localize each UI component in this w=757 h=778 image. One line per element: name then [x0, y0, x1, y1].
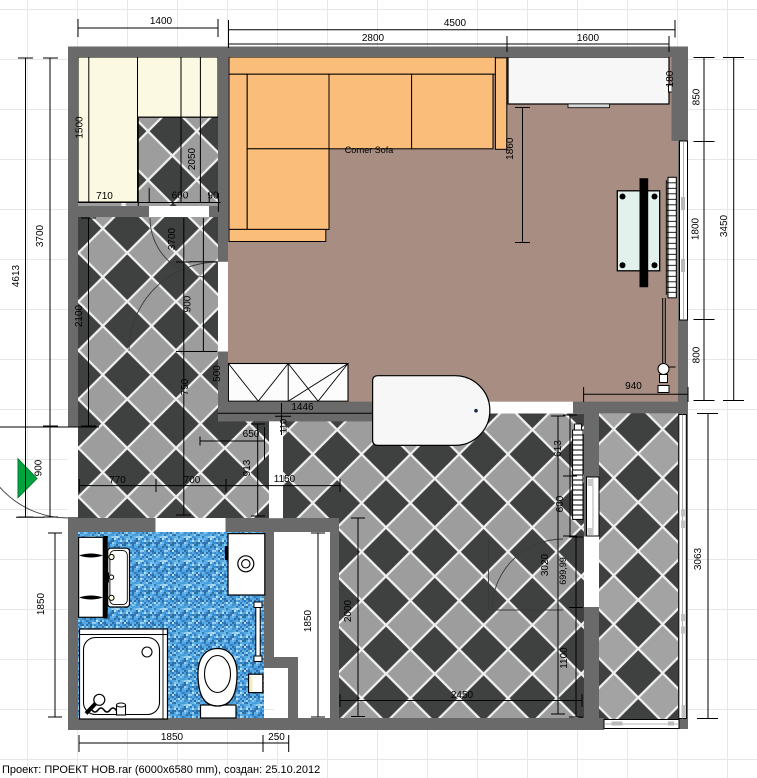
svg-text:2100: 2100	[74, 304, 85, 327]
svg-text:1100: 1100	[559, 647, 570, 669]
svg-text:3450: 3450	[719, 214, 730, 237]
svg-text:Проект: ПРОЕКТ НОВ.rar (6000x6: Проект: ПРОЕКТ НОВ.rar (6000x6580 mm), с…	[2, 764, 320, 776]
svg-text:913: 913	[242, 459, 253, 476]
svg-text:3700: 3700	[35, 224, 46, 247]
svg-text:710: 710	[96, 191, 113, 202]
svg-text:Corner Sofa: Corner Sofa	[345, 145, 394, 155]
svg-text:2000: 2000	[343, 599, 354, 622]
svg-text:500: 500	[212, 365, 223, 382]
svg-text:1850: 1850	[161, 732, 184, 743]
svg-text:90: 90	[207, 191, 219, 202]
svg-text:2800: 2800	[362, 33, 385, 44]
svg-text:613: 613	[553, 440, 564, 457]
svg-text:650: 650	[243, 429, 260, 440]
svg-text:3020: 3020	[540, 553, 551, 576]
svg-text:900: 900	[183, 295, 194, 312]
svg-text:2050: 2050	[187, 147, 198, 170]
svg-text:1400: 1400	[150, 16, 173, 27]
svg-text:700: 700	[184, 475, 201, 486]
svg-text:250: 250	[268, 732, 285, 743]
svg-text:600: 600	[555, 495, 566, 512]
svg-text:750: 750	[180, 378, 191, 395]
svg-text:3700: 3700	[167, 227, 178, 250]
svg-text:4500: 4500	[444, 18, 467, 29]
svg-text:800: 800	[692, 346, 703, 363]
svg-text:1600: 1600	[577, 33, 600, 44]
svg-text:850: 850	[692, 88, 703, 105]
svg-text:4613: 4613	[11, 264, 22, 287]
svg-text:1446: 1446	[291, 402, 314, 413]
svg-text:1800: 1800	[691, 217, 702, 240]
svg-text:1850: 1850	[36, 592, 47, 615]
svg-text:3063: 3063	[693, 547, 704, 570]
svg-text:1850: 1850	[303, 609, 314, 632]
svg-text:2450: 2450	[451, 690, 474, 701]
svg-text:770: 770	[109, 475, 126, 486]
svg-text:900: 900	[34, 459, 45, 476]
svg-text:940: 940	[625, 381, 642, 392]
svg-text:1860: 1860	[505, 137, 516, 160]
svg-text:180: 180	[665, 70, 676, 87]
svg-text:600: 600	[172, 191, 189, 202]
svg-text:1150: 1150	[274, 474, 296, 485]
svg-text:110: 110	[279, 419, 289, 433]
svg-text:1500: 1500	[75, 116, 86, 139]
svg-text:699,99: 699,99	[558, 557, 568, 585]
